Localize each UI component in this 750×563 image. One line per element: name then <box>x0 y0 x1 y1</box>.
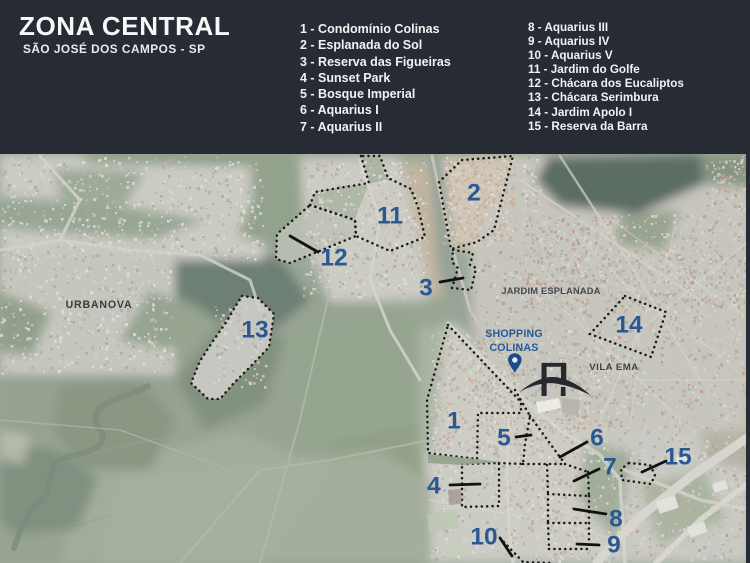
svg-text:9: 9 <box>607 531 621 558</box>
svg-text:8: 8 <box>609 505 623 532</box>
svg-text:4: 4 <box>427 472 441 499</box>
svg-text:2: 2 <box>467 179 481 206</box>
svg-text:10: 10 <box>470 523 497 550</box>
svg-text:COLINAS: COLINAS <box>489 342 538 354</box>
svg-text:6: 6 <box>590 424 604 451</box>
svg-text:URBANOVA: URBANOVA <box>66 299 133 311</box>
svg-text:11: 11 <box>377 202 403 229</box>
svg-text:VILA EMA: VILA EMA <box>589 362 638 373</box>
svg-text:12: 12 <box>320 244 347 271</box>
svg-text:SHOPPING: SHOPPING <box>485 328 543 340</box>
svg-text:JARDIM ESPLANADA: JARDIM ESPLANADA <box>501 286 600 296</box>
svg-text:14: 14 <box>615 311 643 338</box>
svg-text:15: 15 <box>664 443 691 470</box>
svg-text:7: 7 <box>603 453 617 480</box>
svg-text:13: 13 <box>241 316 268 343</box>
svg-text:1: 1 <box>447 407 461 434</box>
svg-text:5: 5 <box>497 424 511 451</box>
svg-text:3: 3 <box>419 274 433 301</box>
